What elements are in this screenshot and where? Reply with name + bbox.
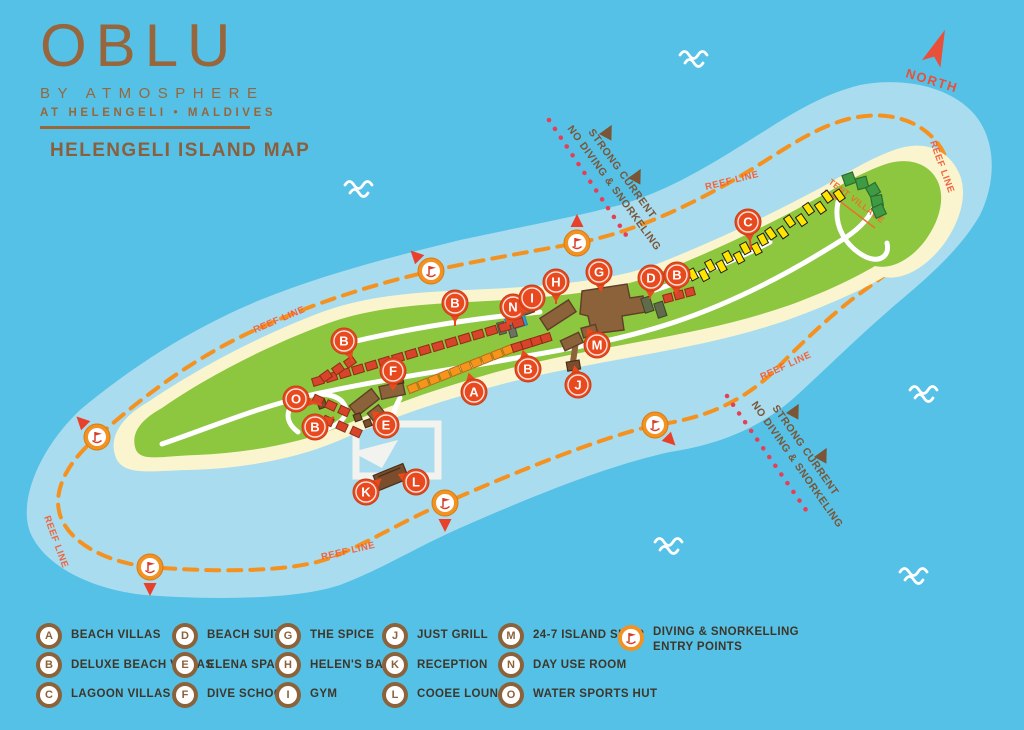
legend-letter: I [279,686,297,704]
elena-spa-hut [353,413,362,422]
legend-letter: F [176,686,194,704]
north-arrow-icon [922,26,954,68]
marker-letter: B [672,268,681,283]
marker-letter: G [594,265,604,280]
legend-item-J: JJUST GRILL [382,622,488,649]
marker-letter: L [412,475,420,490]
page-title: HELENGELI ISLAND MAP [50,140,310,162]
brand-location: AT HELENGELI • MALDIVES [40,107,310,119]
legend-label: DIVING & SNORKELLING [653,625,799,640]
legend-label: BEACH VILLAS [71,628,161,643]
legend-letter: L [386,686,404,704]
marker-letter: B [450,296,459,311]
entry-flag-group [646,416,664,434]
brand-byline: BY ATMOSPHERE [40,85,310,102]
brand-logo: OBLU [40,14,310,77]
wave-line [345,182,372,189]
legend-letter-badge: D [172,623,198,649]
legend-label: ENTRY POINTS [653,640,799,655]
marker-letter: H [551,275,560,290]
legend-item-E: EELENA SPA [172,652,275,679]
legend-letter-badge: J [382,623,408,649]
legend-letter: H [279,656,297,674]
legend-letter: B [40,656,58,674]
legend-item-H: HHELEN'S BAR [275,652,392,679]
dive-flag-icon [622,629,640,647]
entry-flag-group [88,428,106,446]
legend-item-O: OWATER SPORTS HUT [498,681,657,708]
legend-letter: E [176,656,194,674]
marker-letter: B [310,420,319,435]
entry-inner-disc [141,558,159,576]
entry-inner-disc [422,262,440,280]
entry-inner-disc [88,428,106,446]
legend-label: ELENA SPA [207,658,275,673]
marker-letter: O [291,392,301,407]
legend-item-A: ABEACH VILLAS [36,622,161,649]
wave-icon [655,539,682,554]
wave-line [680,52,707,59]
deluxe-beach-villa [663,293,674,303]
wave-icon [910,387,937,402]
legend-letter: K [386,656,404,674]
legend-letter-badge: G [275,623,301,649]
marker-letter: N [508,300,517,315]
legend-item-G: GTHE SPICE [275,622,374,649]
wave-icon [900,569,927,584]
legend-label: WATER SPORTS HUT [533,687,657,702]
marker-letter: C [743,215,753,230]
entry-inner-disc [436,494,454,512]
legend-label: JUST GRILL [417,628,488,643]
entry-point-badge [618,625,644,651]
marker-letter: M [592,338,603,353]
legend-letter-badge: I [275,682,301,708]
legend-letter: C [40,686,58,704]
legend-label: THE SPICE [310,628,374,643]
deluxe-beach-villa [685,287,696,297]
marker-letter: D [646,271,655,286]
legend-label: GYM [310,687,337,702]
marker-letter: K [361,485,371,500]
entry-inner-disc [622,629,640,647]
legend-letter: M [502,627,520,645]
wave-icon [680,52,707,67]
wave-line [685,60,703,67]
legend-letter-badge: H [275,652,301,678]
legend-letter-badge: O [498,682,524,708]
entry-flag-group [436,494,454,512]
legend-item-N: NDAY USE ROOM [498,652,627,679]
legend-label: LAGOON VILLAS [71,687,171,702]
legend-letter-badge: F [172,682,198,708]
wave-line [910,387,937,394]
marker-letter: I [530,291,534,306]
legend-letter-badge: M [498,623,524,649]
legend-letter: J [386,627,404,645]
marker-letter: B [339,334,348,349]
elena-spa-hut [363,419,372,428]
legend-letter: A [40,627,58,645]
entry-flag-group [422,262,440,280]
legend-item-K: KRECEPTION [382,652,488,679]
wave-icon [345,182,372,197]
legend-item-L: LCOOEE LOUNGE [382,681,516,708]
wave-line [655,539,682,546]
marker-letter: B [523,362,532,377]
legend-label: RECEPTION [417,658,488,673]
legend-letter-badge: N [498,652,524,678]
legend-item-entry-points: DIVING & SNORKELLINGENTRY POINTS [618,625,799,655]
marker-letter: E [382,418,391,433]
logo-block: OBLU BY ATMOSPHERE AT HELENGELI • MALDIV… [40,14,310,162]
legend-letter-badge: C [36,682,62,708]
dive-flag-icon-svg [622,629,640,647]
legend-letter-badge: K [382,652,408,678]
legend-letter: D [176,627,194,645]
legend-label: HELEN'S BAR [310,658,392,673]
marker-letter: J [574,378,581,393]
legend-letter: N [502,656,520,674]
wave-line [905,577,923,584]
legend-label: DAY USE ROOM [533,658,627,673]
wave-line [900,569,927,576]
legend-item-C: CLAGOON VILLAS [36,681,171,708]
wave-line [915,395,933,402]
legend-letter: G [279,627,297,645]
legend-letter-badge: B [36,652,62,678]
wave-line [660,547,678,554]
wave-line [350,190,368,197]
marker-letter: A [469,385,479,400]
entry-flag-group [568,234,586,252]
legend-letter-badge: L [382,682,408,708]
entry-inner-disc [568,234,586,252]
entry-flag-group [141,558,159,576]
legend-item-I: IGYM [275,681,337,708]
logo-divider [40,126,250,129]
entry-inner-disc [646,416,664,434]
legend-letter-badge: A [36,623,62,649]
island-map-poster: TENT VILLAGE REEF LINEREEF LINE [0,0,1024,730]
marker-letter: F [389,364,397,379]
legend-letter-badge: E [172,652,198,678]
legend-item-F: FDIVE SCHOOL [172,681,291,708]
legend-letter: O [502,686,520,704]
